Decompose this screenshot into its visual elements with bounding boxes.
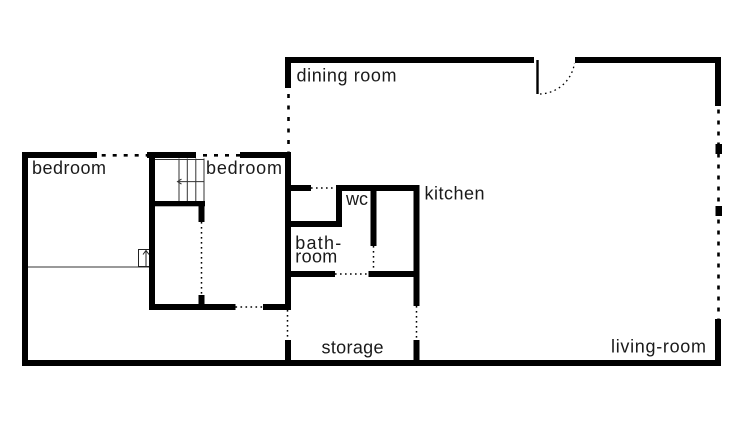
svg-text:bedroom: bedroom <box>206 158 282 178</box>
svg-text:dining room: dining room <box>297 66 397 86</box>
svg-text:wc: wc <box>345 189 368 209</box>
svg-text:living-room: living-room <box>611 337 706 357</box>
svg-text:bedroom: bedroom <box>32 158 106 178</box>
svg-text:storage: storage <box>322 338 384 358</box>
svg-text:kitchen: kitchen <box>425 184 485 204</box>
svg-text:room: room <box>295 247 337 267</box>
